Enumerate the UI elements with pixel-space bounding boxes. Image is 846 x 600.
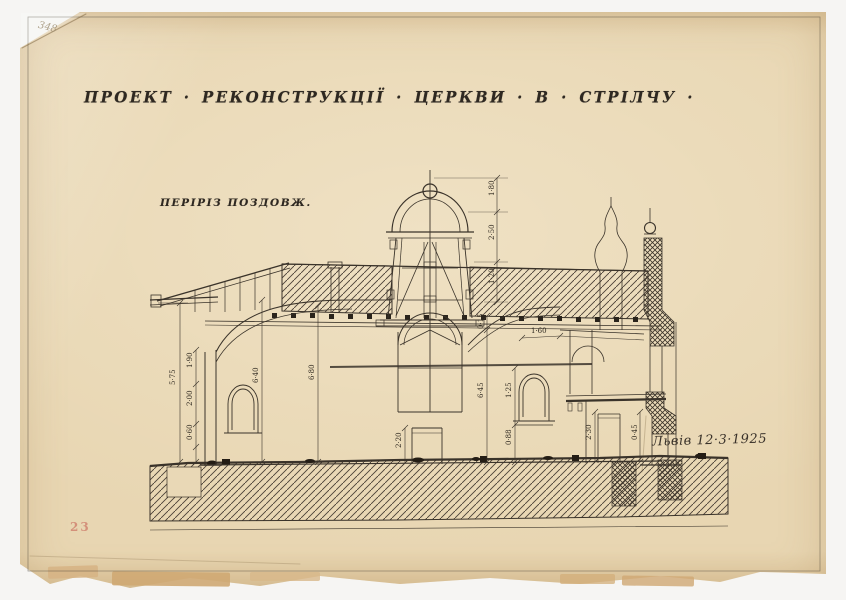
- tape-fragment: [622, 575, 694, 586]
- tape-fragment: [560, 574, 615, 584]
- drawing-title: ПРОЕКТ · РЕКОНСТРУКЦІЇ · ЦЕРКВИ · В · СТ…: [84, 87, 695, 106]
- signature: Львів 12·3·1925: [652, 431, 767, 449]
- tape-fragment: [48, 565, 98, 579]
- tape-fragment: [112, 571, 230, 586]
- section-label: ПЕРІРІЗ ПОЗДОВЖ.: [160, 197, 312, 209]
- red-stamp-number: 23: [70, 520, 91, 534]
- tape-fragment: [250, 572, 320, 581]
